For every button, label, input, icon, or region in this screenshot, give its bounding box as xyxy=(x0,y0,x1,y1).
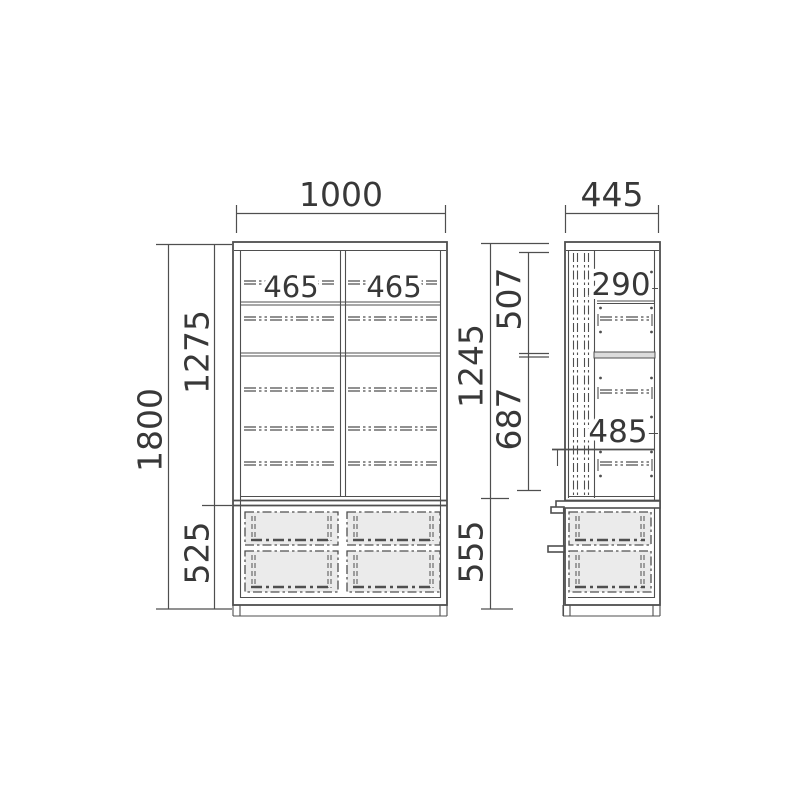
dim-shelf-space-bottom-label: 485 xyxy=(588,414,647,450)
dim-side-lower-height-label: 555 xyxy=(452,521,491,584)
dim-shelf-space-top-label: 290 xyxy=(591,267,650,303)
technical-drawing: 1000 445 1800 1275 525 1245 555 507 687 … xyxy=(0,0,800,800)
dim-side-bottom-section-label: 687 xyxy=(490,388,529,451)
dim-front-total-height-label: 1800 xyxy=(131,388,170,472)
drawing-canvas: 1000 445 1800 1275 525 1245 555 507 687 … xyxy=(0,0,800,800)
dim-side-top-section-label: 507 xyxy=(490,268,529,331)
background xyxy=(0,0,800,800)
side-drawer xyxy=(569,512,651,545)
side-drawer xyxy=(569,551,651,592)
dim-side-depth-label: 445 xyxy=(581,175,644,214)
side-drawer-handle xyxy=(548,546,564,552)
front-drawer xyxy=(347,551,440,592)
side-fixed-shelf-thick xyxy=(594,352,655,358)
front-drawer xyxy=(347,512,440,545)
dim-front-lower-height-label: 525 xyxy=(178,522,217,585)
dim-side-upper-height-label: 1245 xyxy=(452,324,491,408)
dim-compartment-width-right-label: 465 xyxy=(366,270,421,304)
side-counter-top xyxy=(556,501,660,508)
dim-compartment-width-left-label: 465 xyxy=(263,270,318,304)
front-drawer xyxy=(245,512,338,545)
dim-front-upper-height-label: 1275 xyxy=(178,310,217,394)
dim-front-width-label: 1000 xyxy=(299,175,383,214)
front-drawer xyxy=(245,551,338,592)
side-drawer-handle xyxy=(551,507,564,513)
